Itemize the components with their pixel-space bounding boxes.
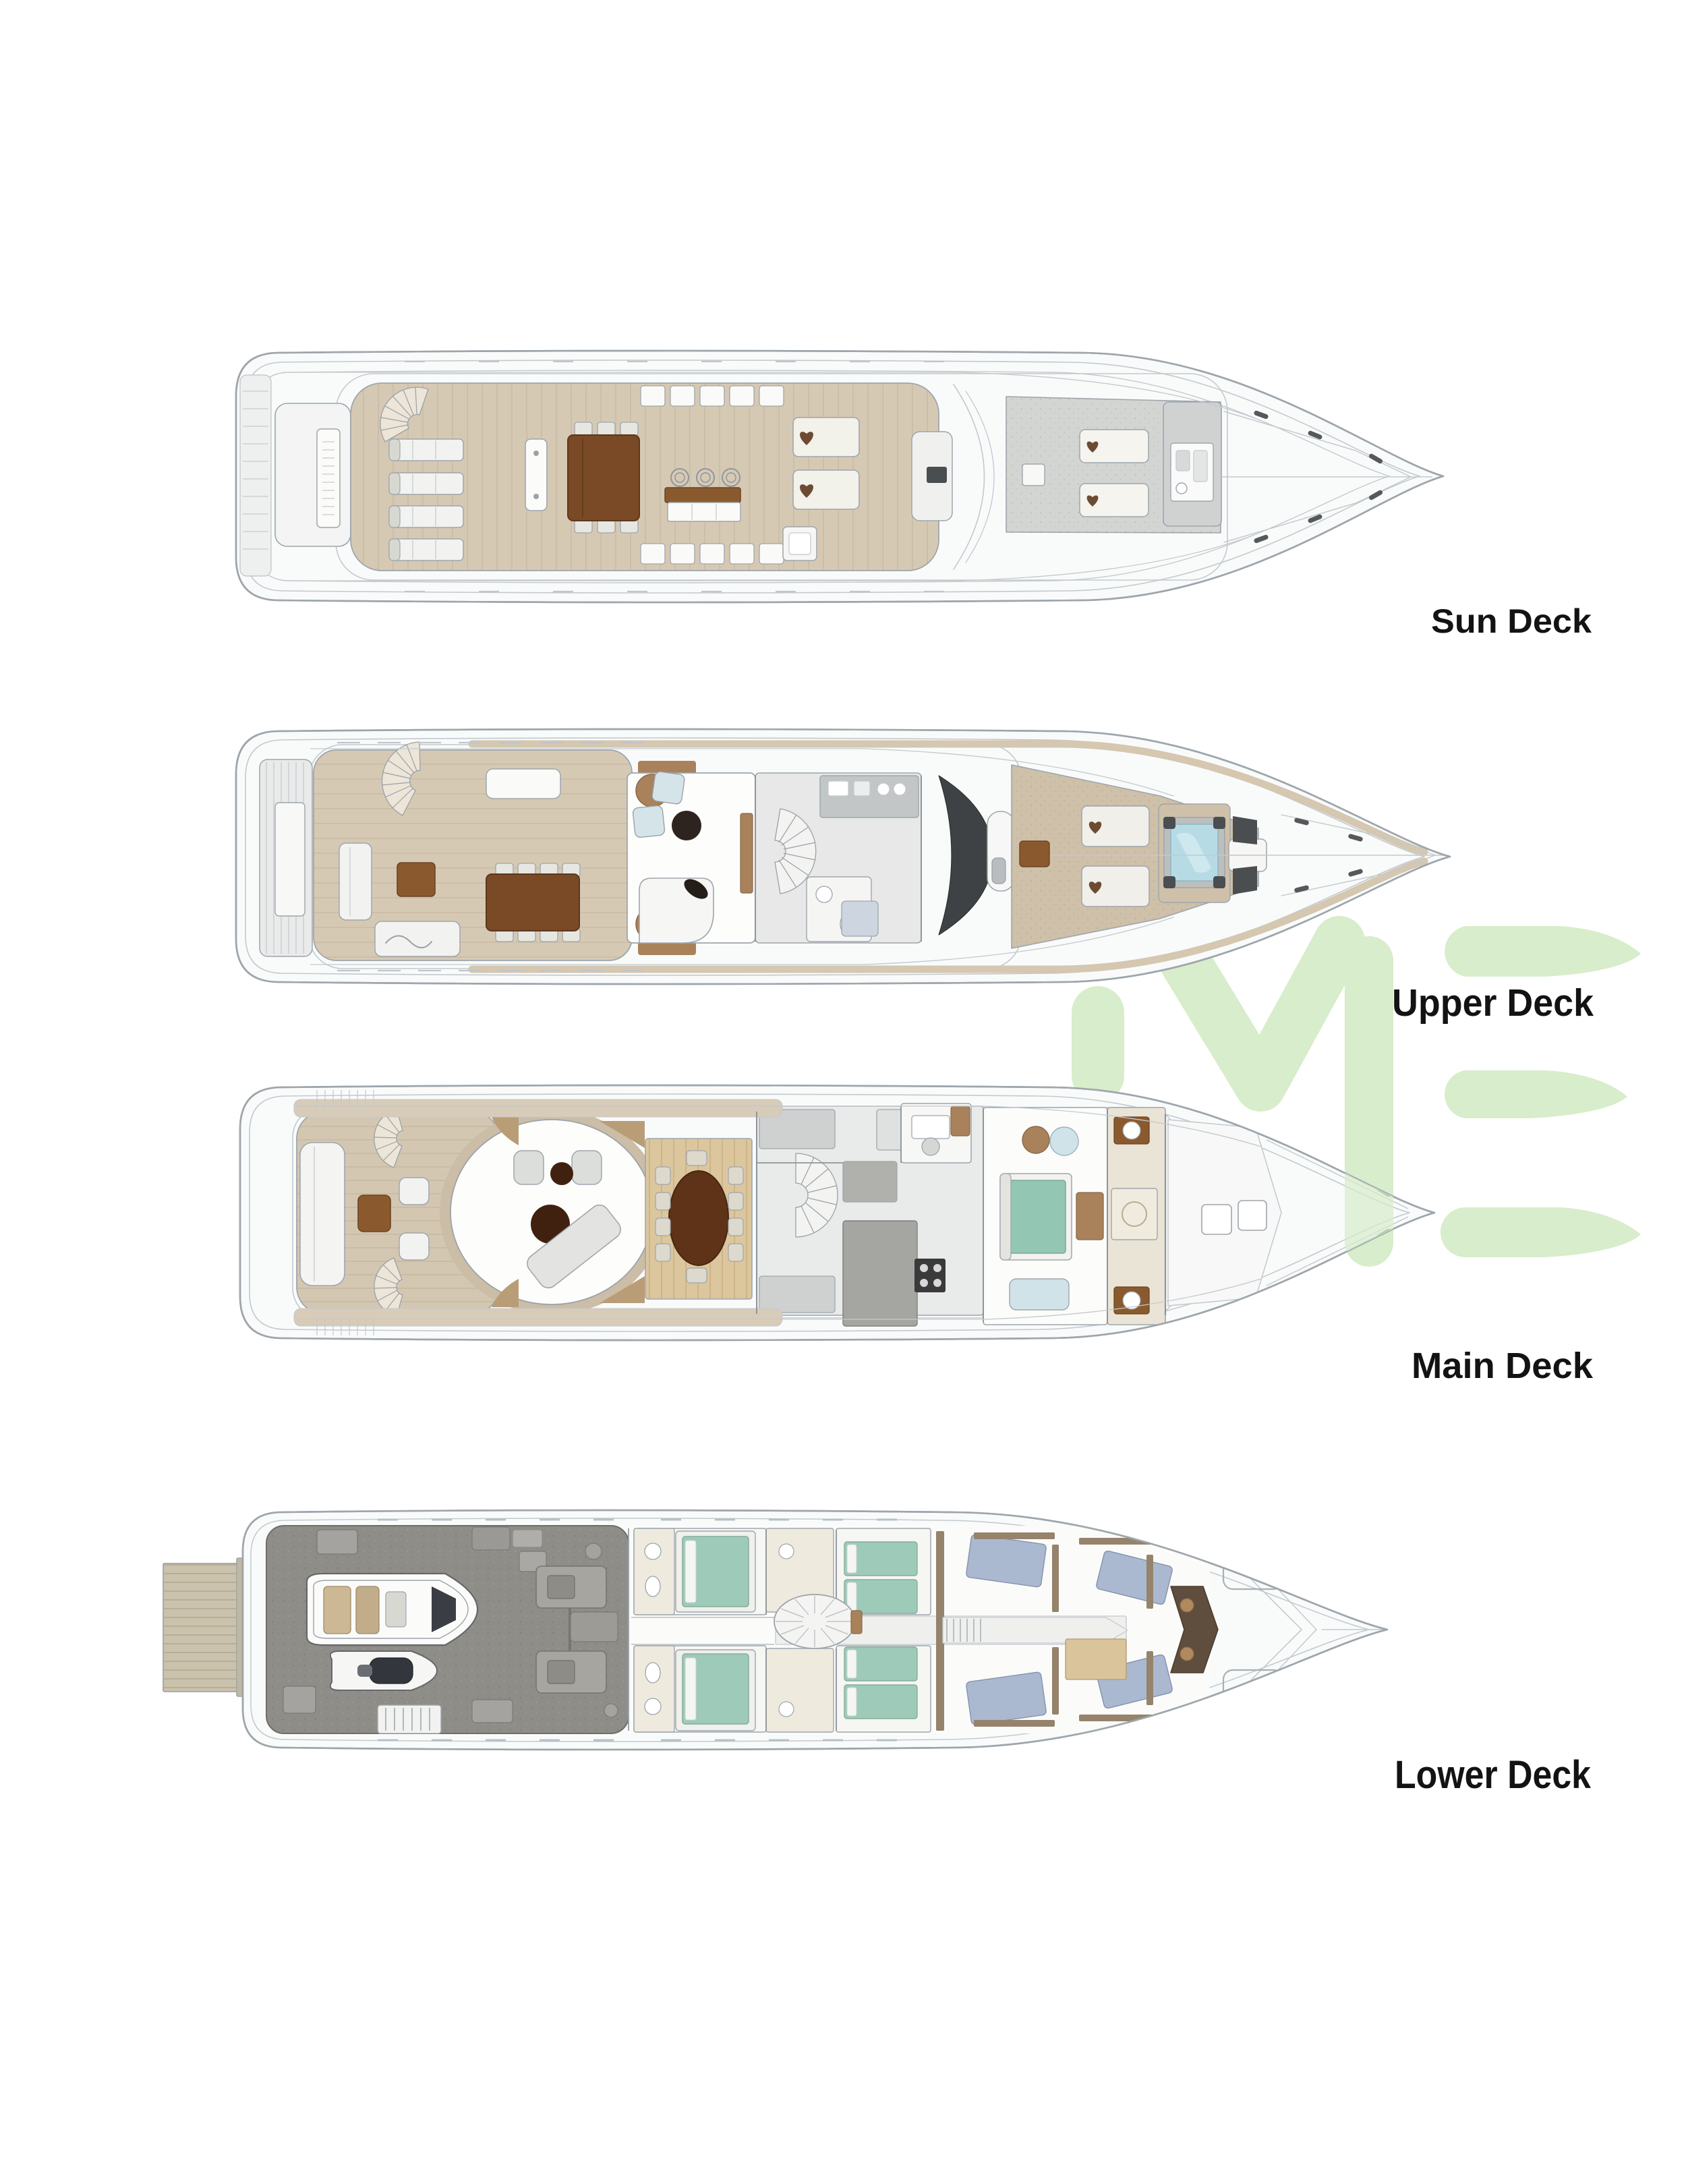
svg-text:Main Deck: Main Deck	[1412, 1346, 1594, 1386]
svg-text:Lower Deck: Lower Deck	[1395, 1753, 1592, 1797]
svg-text:Sun Deck: Sun Deck	[1431, 602, 1592, 640]
svg-text:Upper Deck: Upper Deck	[1392, 981, 1594, 1025]
